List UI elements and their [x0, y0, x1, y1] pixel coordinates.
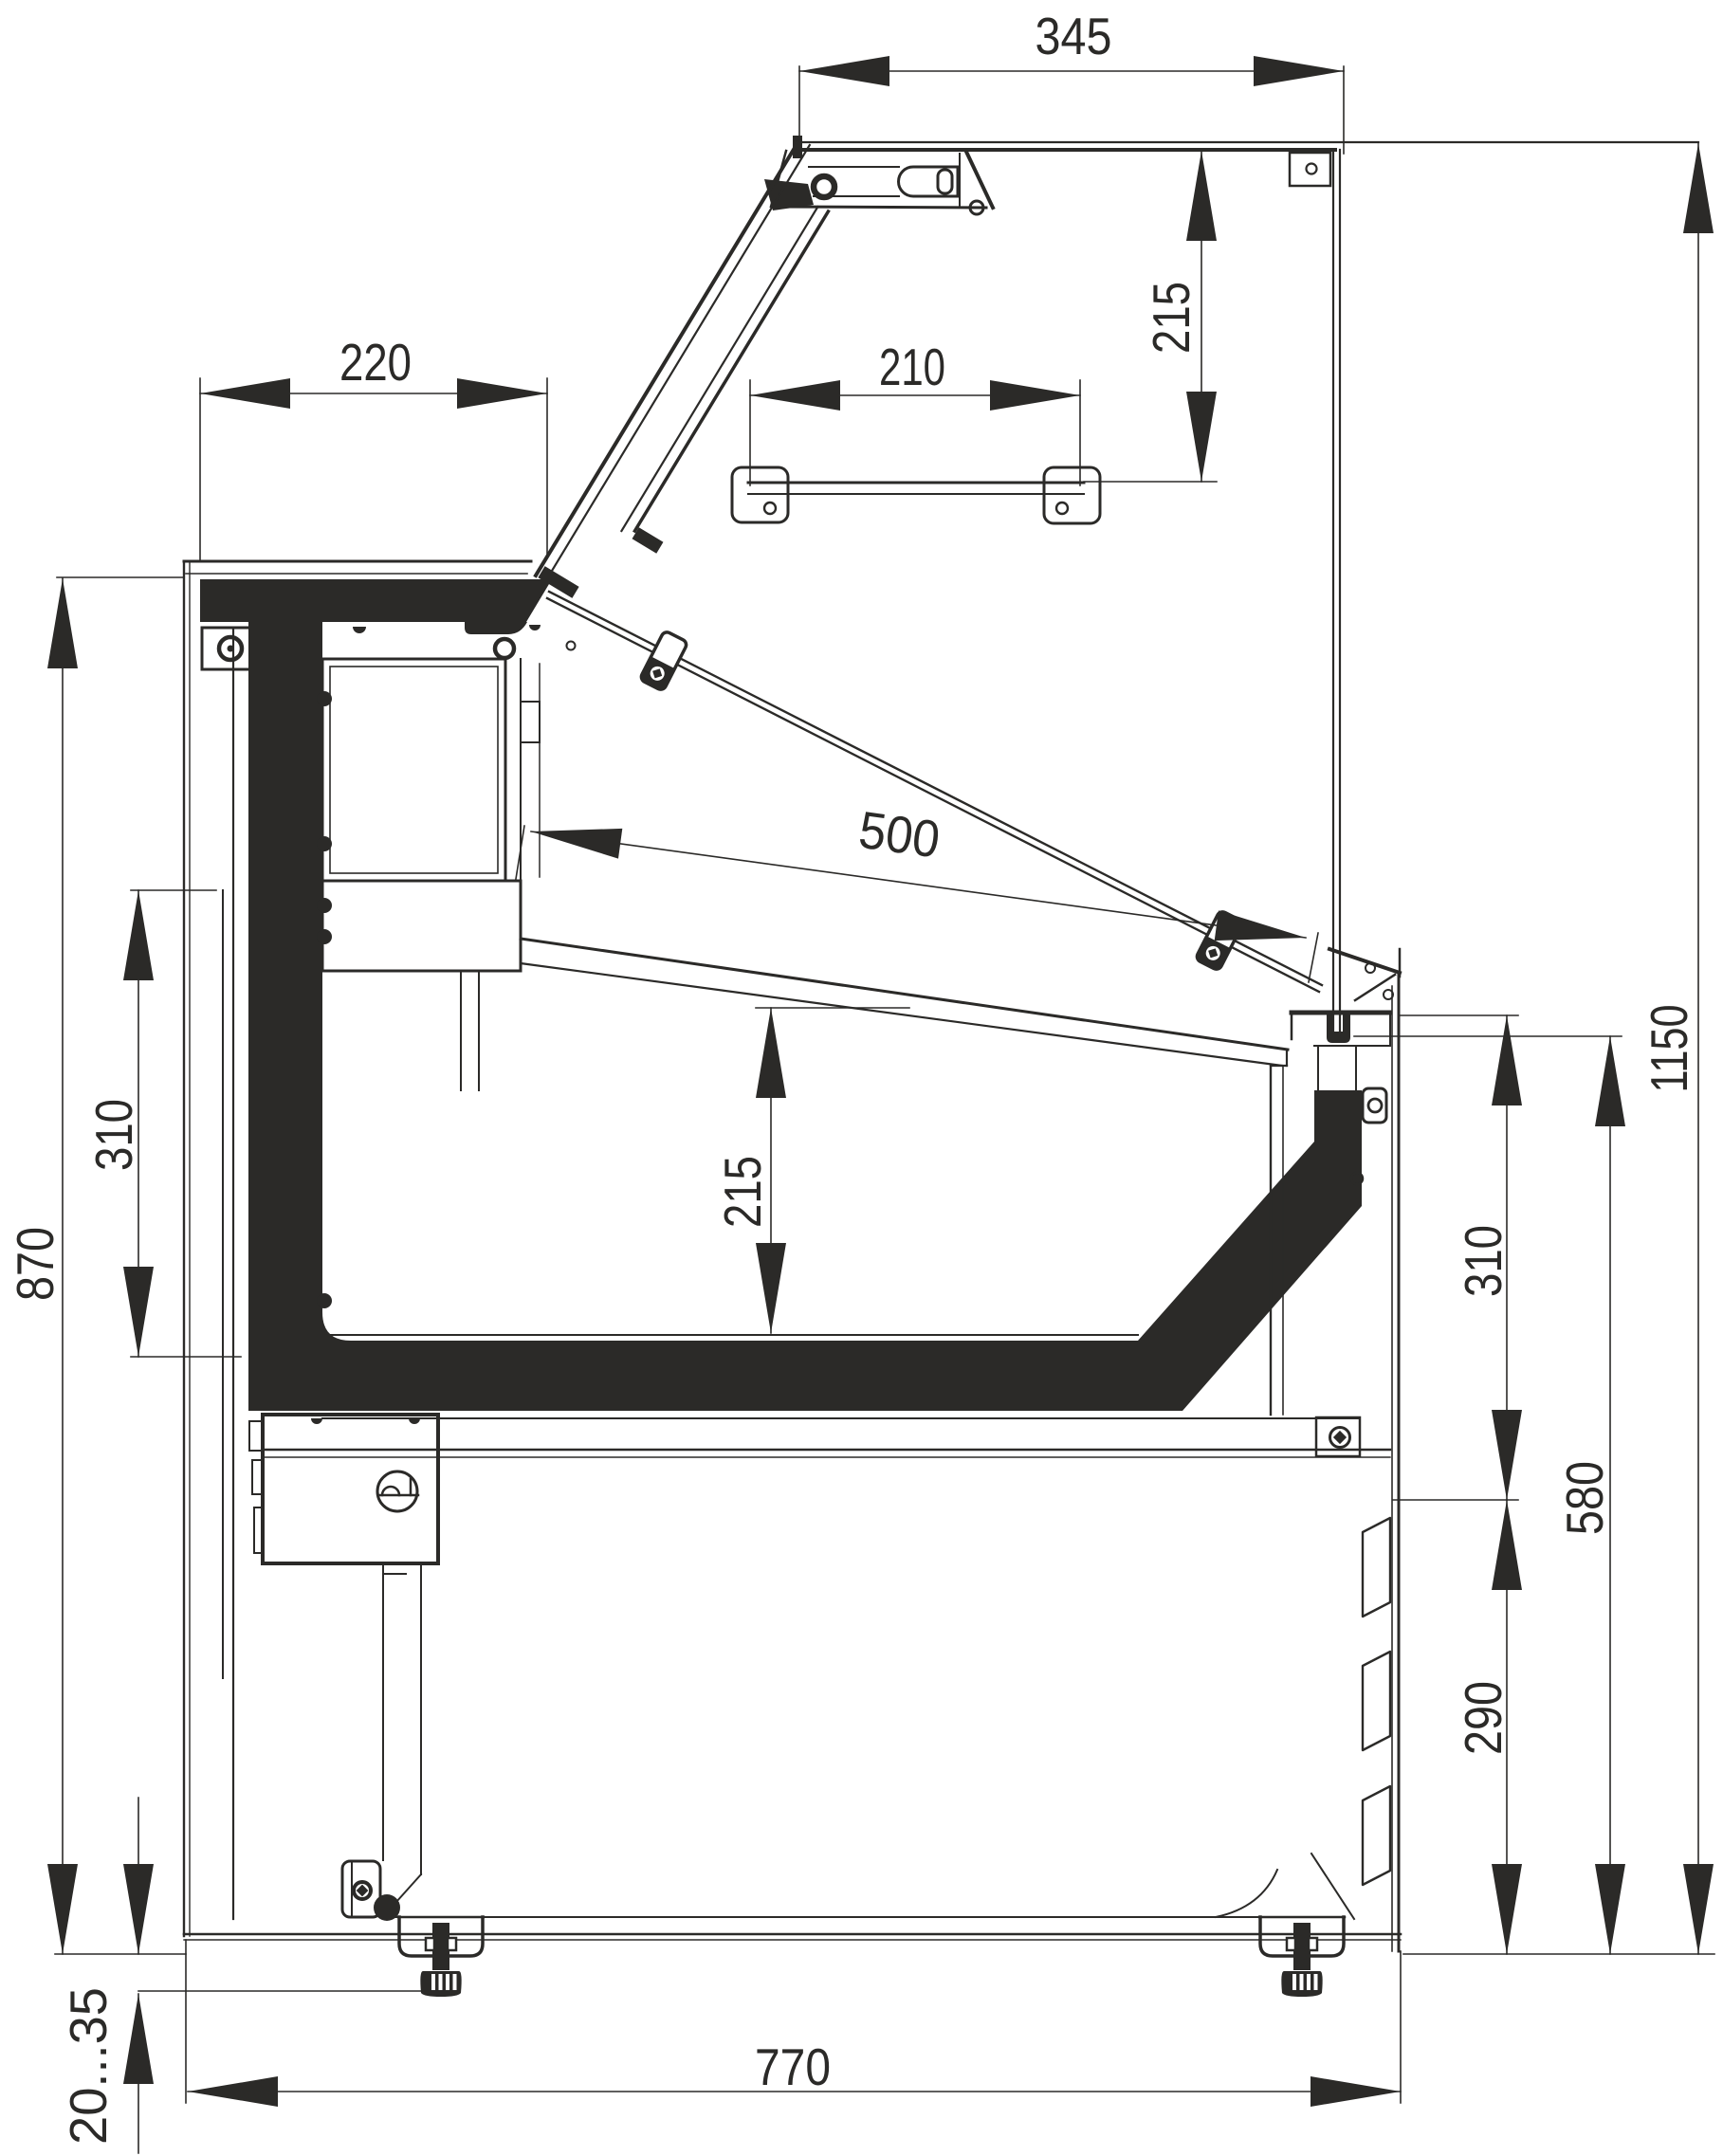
svg-text:220: 220: [339, 333, 412, 392]
svg-text:580: 580: [1555, 1461, 1614, 1535]
svg-text:290: 290: [1454, 1681, 1512, 1755]
svg-text:500: 500: [855, 800, 944, 869]
svg-text:870: 870: [6, 1227, 64, 1301]
svg-text:215: 215: [713, 1156, 772, 1228]
svg-text:20...35: 20...35: [59, 1987, 118, 2145]
svg-text:345: 345: [1036, 7, 1112, 65]
svg-text:770: 770: [755, 2037, 831, 2096]
svg-text:215: 215: [1142, 282, 1201, 354]
svg-text:310: 310: [84, 1099, 143, 1171]
svg-text:210: 210: [879, 338, 945, 396]
svg-text:1150: 1150: [1640, 1005, 1698, 1093]
svg-text:310: 310: [1454, 1225, 1512, 1297]
